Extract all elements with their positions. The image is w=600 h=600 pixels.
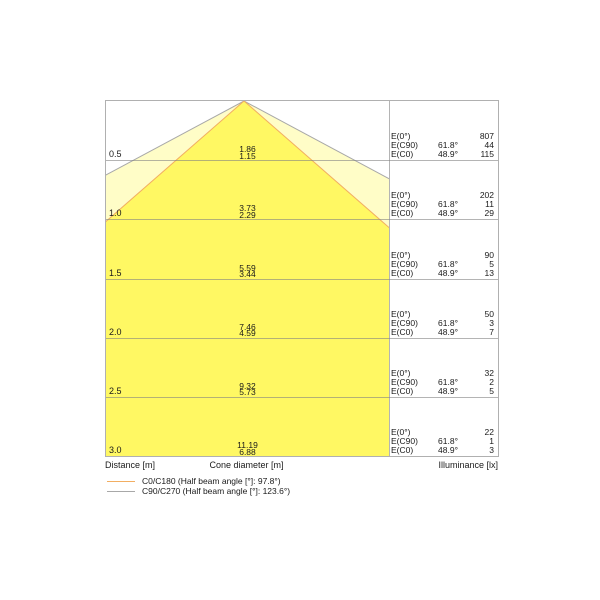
cone-diameter-values: 5.59 3.44 — [106, 265, 389, 278]
legend-item-c90-c270: C90/C270 (Half beam angle [°]: 123.6°) — [107, 486, 290, 496]
ec0-angle: 48.9° — [431, 328, 458, 337]
x-axis-label-illuminance: Illuminance [lx] — [388, 460, 498, 471]
cone-diameter-narrow-value: 6.88 — [106, 449, 389, 456]
ec0-label: E(C0) — [391, 269, 431, 278]
c0-c180-line-swatch-icon — [107, 481, 135, 482]
legend: C0/C180 (Half beam angle [°]: 97.8°) C90… — [107, 476, 290, 496]
legend-item-c0-c180: C0/C180 (Half beam angle [°]: 97.8°) — [107, 476, 290, 486]
cone-diameter-values: 3.73 2.29 — [106, 205, 389, 218]
grid-line-0.5m — [106, 160, 498, 161]
illuminance-block: E(0°)22 E(C90)61.8°1 E(C0)48.9°3 — [391, 428, 494, 455]
ec0-value: 13 — [458, 269, 494, 278]
cone-diameter-values: 9.32 5.73 — [106, 383, 389, 396]
ec0-angle: 48.9° — [431, 269, 458, 278]
c90-c270-line-swatch-icon — [107, 491, 135, 492]
illuminance-block: E(0°)50 E(C90)61.8°3 E(C0)48.9°7 — [391, 310, 494, 337]
cone-diagram: 0.5 1.86 1.15 E(0°)807 E(C90)61.8°44 E(C… — [0, 0, 600, 600]
cone-diameter-narrow-value: 2.29 — [106, 212, 389, 219]
illuminance-block: E(0°)90 E(C90)61.8°5 E(C0)48.9°13 — [391, 251, 494, 278]
ec0-value: 29 — [458, 209, 494, 218]
ec0-label: E(C0) — [391, 387, 431, 396]
cone-diameter-values: 7.46 4.59 — [106, 324, 389, 337]
cone-diameter-narrow-value: 1.15 — [106, 153, 389, 160]
cone-diameter-narrow-value: 4.59 — [106, 330, 389, 337]
legend-label-c90-c270: C90/C270 (Half beam angle [°]: 123.6°) — [142, 486, 290, 496]
cone-diameter-narrow-value: 3.44 — [106, 271, 389, 278]
plot-frame: 0.5 1.86 1.15 E(0°)807 E(C90)61.8°44 E(C… — [105, 100, 499, 457]
illuminance-block: E(0°)202 E(C90)61.8°11 E(C0)48.9°29 — [391, 191, 494, 218]
ec0-label: E(C0) — [391, 328, 431, 337]
ec0-label: E(C0) — [391, 446, 431, 455]
grid-line-1.5m — [106, 279, 498, 280]
ec0-angle: 48.9° — [431, 387, 458, 396]
cone-diameter-values: 1.86 1.15 — [106, 146, 389, 159]
grid-line-2.5m — [106, 397, 498, 398]
ec0-angle: 48.9° — [431, 446, 458, 455]
ec0-value: 7 — [458, 328, 494, 337]
cone-diameter-narrow-value: 5.73 — [106, 389, 389, 396]
ec0-angle: 48.9° — [431, 209, 458, 218]
ec0-label: E(C0) — [391, 209, 431, 218]
cone-diameter-values: 11.19 6.88 — [106, 442, 389, 455]
legend-label-c0-c180: C0/C180 (Half beam angle [°]: 97.8°) — [142, 476, 281, 486]
illuminance-block: E(0°)32 E(C90)61.8°2 E(C0)48.9°5 — [391, 369, 494, 396]
grid-line-2.0m — [106, 338, 498, 339]
ec0-angle: 48.9° — [431, 150, 458, 159]
x-axis-label-cone-diameter: Cone diameter [m] — [105, 460, 388, 471]
ec0-label: E(C0) — [391, 150, 431, 159]
ec0-value: 3 — [458, 446, 494, 455]
ec0-value: 5 — [458, 387, 494, 396]
illuminance-block: E(0°)807 E(C90)61.8°44 E(C0)48.9°115 — [391, 132, 494, 159]
panel-divider — [389, 101, 390, 456]
grid-line-1.0m — [106, 219, 498, 220]
ec0-value: 115 — [458, 150, 494, 159]
